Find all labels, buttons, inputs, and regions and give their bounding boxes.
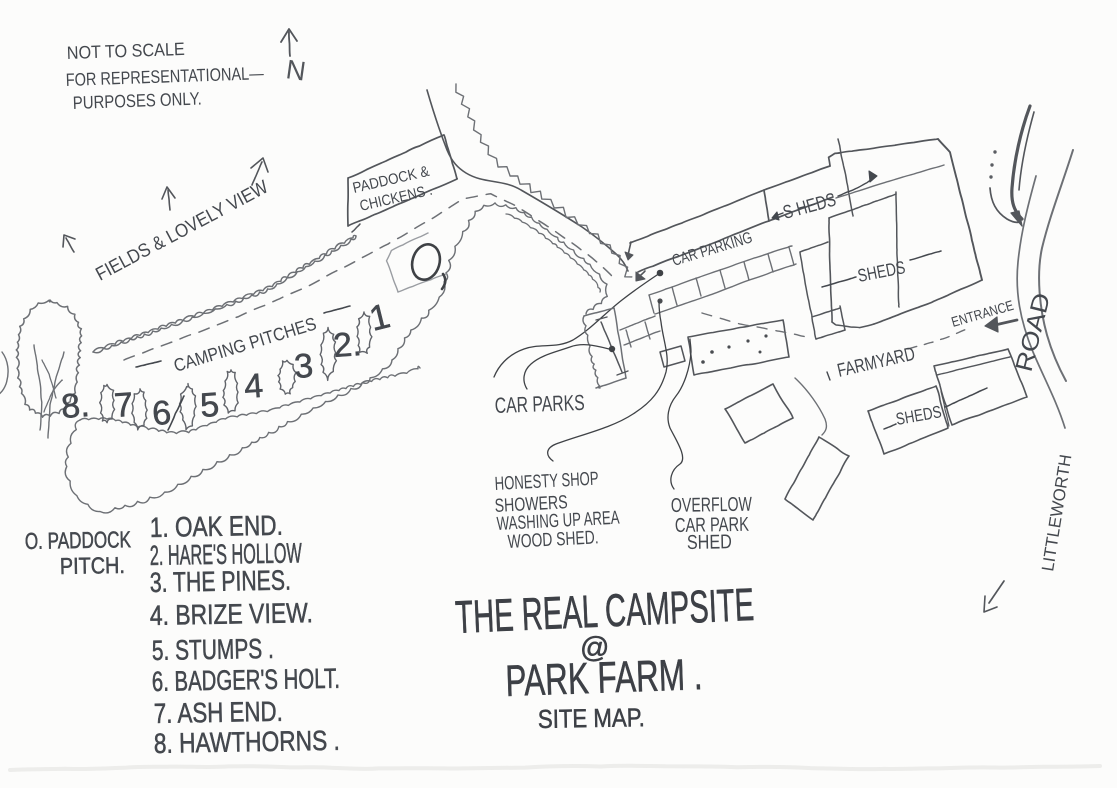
svg-text:5: 5	[199, 386, 221, 425]
svg-text:SITE MAP.: SITE MAP.	[538, 702, 646, 734]
svg-text:PITCH.: PITCH.	[60, 552, 125, 579]
svg-text:6. BADGER'S HOLT.: 6. BADGER'S HOLT.	[152, 663, 341, 697]
svg-text:NOT TO SCALE: NOT TO SCALE	[66, 39, 185, 63]
svg-text:WOOD SHED.: WOOD SHED.	[507, 527, 599, 553]
svg-text:8. HAWTHORNS .: 8. HAWTHORNS .	[154, 725, 341, 759]
svg-text:4: 4	[243, 367, 265, 406]
svg-text:SHEDS: SHEDS	[856, 257, 907, 286]
svg-text:HONESTY SHOP: HONESTY SHOP	[494, 469, 599, 495]
svg-text:7. ASH END.: 7. ASH END.	[154, 696, 284, 729]
svg-text:N: N	[284, 54, 307, 86]
svg-text:FIELDS & LOVELY VIEW: FIELDS & LOVELY VIEW	[92, 177, 271, 286]
svg-text:4. BRIZE VIEW.: 4. BRIZE VIEW.	[150, 597, 314, 631]
svg-text:FOR REPRESENTATIONAL—: FOR REPRESENTATIONAL—	[65, 63, 264, 90]
svg-text:SHEDS: SHEDS	[894, 402, 943, 429]
svg-text:PARK FARM .: PARK FARM .	[505, 650, 704, 706]
svg-text:3: 3	[293, 347, 315, 386]
svg-text:LITTLEWORTH: LITTLEWORTH	[1038, 453, 1075, 573]
svg-text:O. PADDOCK: O. PADDOCK	[25, 526, 132, 554]
svg-text:ROAD: ROAD	[1011, 290, 1057, 374]
svg-text:7: 7	[113, 386, 135, 425]
svg-text:3. THE PINES.: 3. THE PINES.	[150, 565, 292, 598]
svg-text:SHED: SHED	[687, 531, 732, 554]
svg-text:PURPOSES ONLY.: PURPOSES ONLY.	[72, 89, 202, 113]
svg-text:FARMYARD: FARMYARD	[835, 344, 917, 382]
svg-text:5. STUMPS .: 5. STUMPS .	[152, 633, 275, 666]
svg-text:CAR PARKS: CAR PARKS	[494, 390, 585, 418]
svg-text:ENTRANCE: ENTRANCE	[949, 297, 1015, 330]
svg-text:CAR PARKING: CAR PARKING	[670, 229, 754, 270]
svg-text:8.: 8.	[60, 386, 91, 426]
